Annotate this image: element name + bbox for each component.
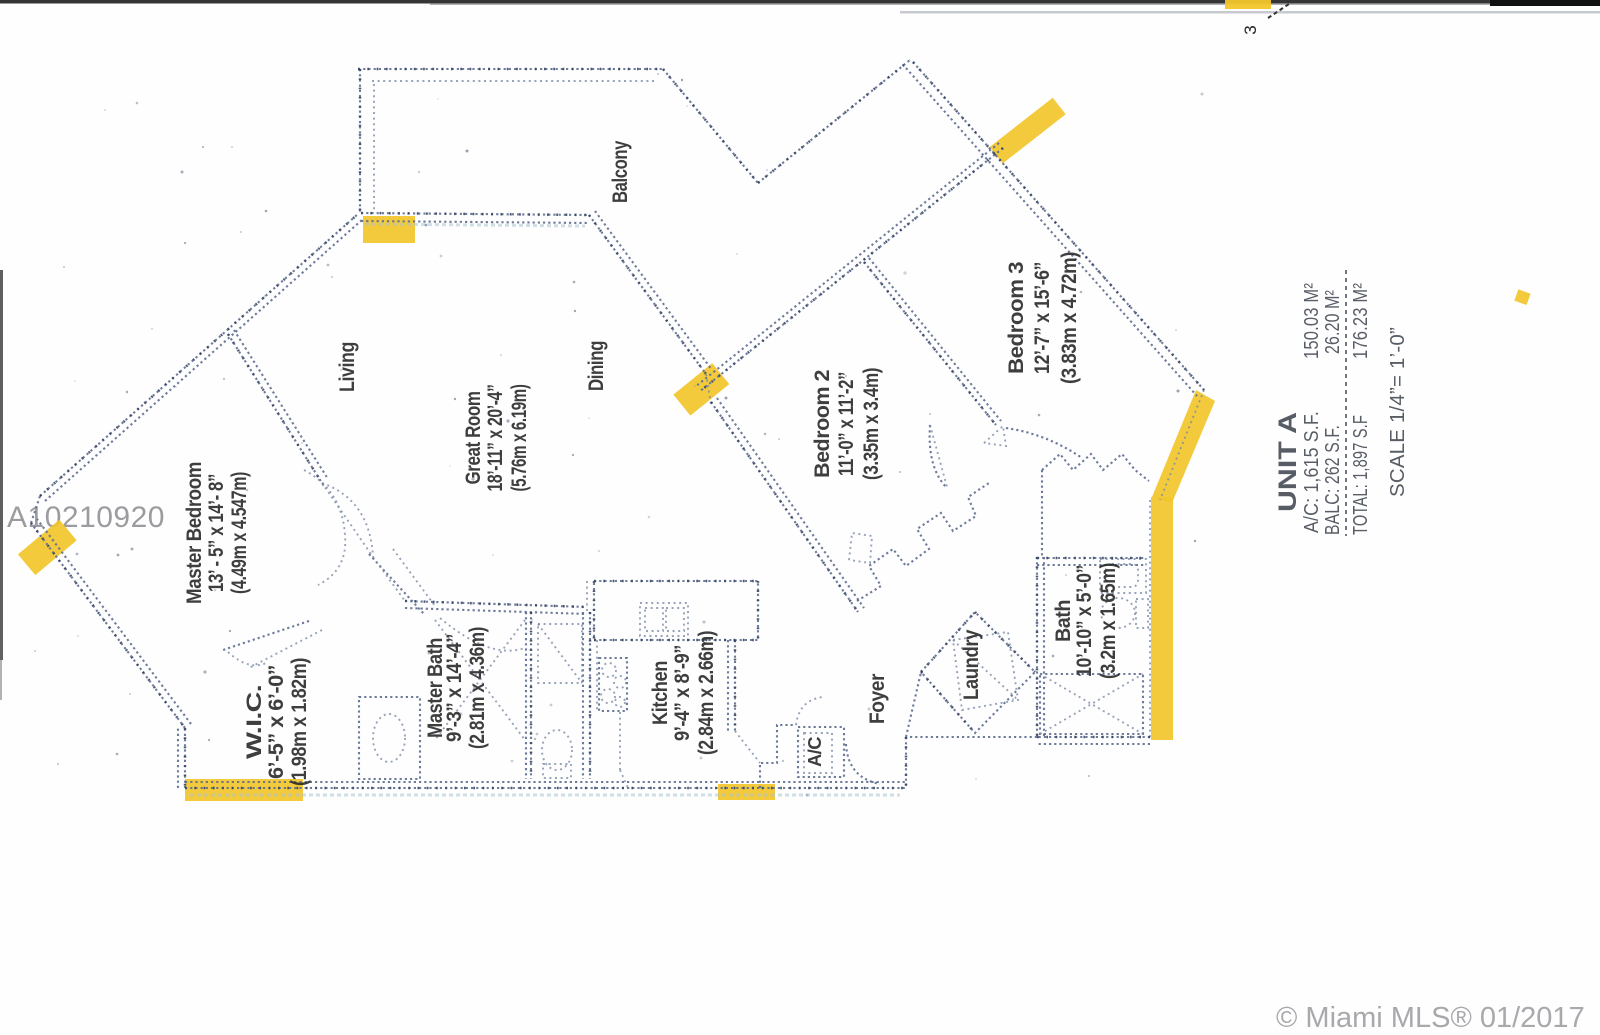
svg-text:10’-10” x 5’-0”: 10’-10” x 5’-0”: [1073, 565, 1096, 677]
svg-text:176.23 M²: 176.23 M²: [1350, 283, 1372, 359]
svg-text:A/C: A/C: [805, 736, 825, 767]
svg-text:3: 3: [1241, 25, 1260, 34]
svg-text:© Miami MLS® 01/2017: © Miami MLS® 01/2017: [1276, 1002, 1585, 1034]
svg-text:(3.2m x 1.65m): (3.2m x 1.65m): [1097, 563, 1120, 679]
svg-text:Bath: Bath: [1052, 600, 1075, 642]
svg-text:9’-4” x 8’-9”: 9’-4” x 8’-9”: [671, 645, 694, 741]
svg-text:Laundry: Laundry: [960, 629, 983, 700]
svg-text:(3.83m x 4.72m): (3.83m x 4.72m): [1058, 252, 1081, 384]
svg-text:(1.98m x 1.82m): (1.98m x 1.82m): [288, 658, 311, 786]
svg-text:12’-7” x 15’-6”: 12’-7” x 15’-6”: [1031, 262, 1054, 374]
svg-text:Dining: Dining: [585, 341, 608, 391]
svg-text:26.20 M²: 26.20 M²: [1322, 290, 1344, 354]
svg-text:18’-11” x 20’-4”: 18’-11” x 20’-4”: [484, 385, 507, 492]
svg-text:(4.49m x 4.547m): (4.49m x 4.547m): [228, 472, 251, 594]
svg-text:BALC: 262 S.F.: BALC: 262 S.F.: [1322, 425, 1344, 535]
svg-text:13’ - 5” x 14’- 8”: 13’ - 5” x 14’- 8”: [205, 474, 228, 592]
svg-text:Balcony: Balcony: [609, 140, 632, 203]
svg-text:A/C: 1,615 S.F.: A/C: 1,615 S.F.: [1301, 411, 1323, 533]
svg-text:W.I.C.: W.I.C.: [243, 685, 266, 759]
svg-text:(5.76m x 6.19m): (5.76m x 6.19m): [508, 385, 531, 492]
svg-text:Bedroom 3: Bedroom 3: [1005, 262, 1028, 374]
svg-text:6’-5” x 6’-0”: 6’-5” x 6’-0”: [265, 665, 288, 779]
svg-text:11’-0” x 11’-2”: 11’-0” x 11’-2”: [835, 372, 858, 476]
svg-text:TOTAL: 1,897 S.F: TOTAL: 1,897 S.F: [1350, 415, 1372, 535]
svg-text:(3.35m x 3.4m): (3.35m x 3.4m): [860, 368, 883, 480]
svg-text:(2.81m x 4.36m): (2.81m x 4.36m): [466, 627, 489, 749]
svg-text:A10210920: A10210920: [7, 501, 165, 534]
svg-text:Master Bedroom: Master Bedroom: [183, 462, 206, 604]
svg-text:(2.84m x 2.66m): (2.84m x 2.66m): [695, 631, 718, 755]
svg-text:150.03 M²: 150.03 M²: [1301, 283, 1323, 359]
svg-text:UNIT A: UNIT A: [1274, 412, 1302, 512]
svg-text:Kitchen: Kitchen: [649, 661, 672, 725]
svg-text:Bedroom 2: Bedroom 2: [811, 370, 834, 478]
svg-text:Living: Living: [336, 342, 359, 392]
svg-text:SCALE 1/4”= 1’-0”: SCALE 1/4”= 1’-0”: [1387, 327, 1409, 497]
svg-text:Great Room: Great Room: [462, 392, 485, 485]
svg-text:9’-3” x 14’-4”: 9’-3” x 14’-4”: [443, 634, 466, 742]
svg-text:Foyer: Foyer: [866, 674, 889, 724]
